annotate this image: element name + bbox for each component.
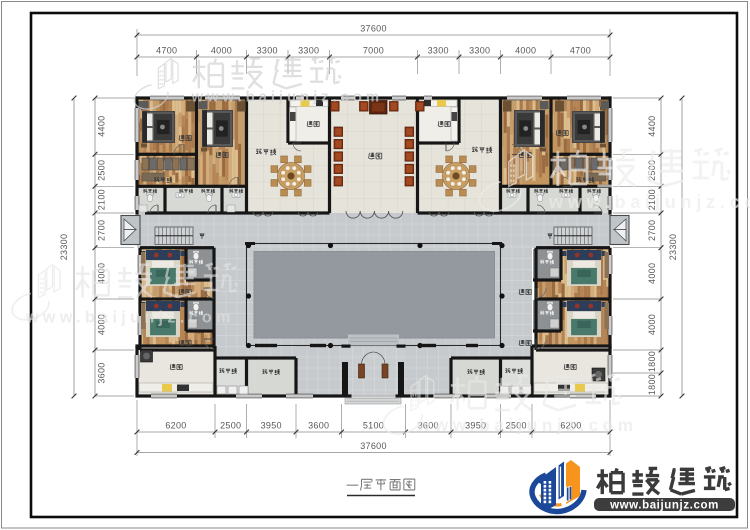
svg-text:4400: 4400 <box>97 116 107 137</box>
svg-text:3600: 3600 <box>97 362 107 383</box>
svg-text:4000: 4000 <box>211 46 232 56</box>
svg-text:www.baijunjz.com: www.baijunjz.com <box>25 308 235 326</box>
svg-text:www.baijunjz.com: www.baijunjz.com <box>609 499 719 511</box>
svg-text:4400: 4400 <box>647 116 657 137</box>
svg-text:37600: 37600 <box>360 441 387 451</box>
svg-text:4700: 4700 <box>570 46 591 56</box>
svg-text:23300: 23300 <box>59 234 69 261</box>
svg-text:37600: 37600 <box>360 24 387 34</box>
svg-text:2700: 2700 <box>97 220 107 241</box>
svg-text:4000: 4000 <box>515 46 536 56</box>
svg-text:5100: 5100 <box>363 421 384 431</box>
svg-text:3950: 3950 <box>261 421 282 431</box>
svg-text:3300: 3300 <box>298 46 319 56</box>
svg-text:2500: 2500 <box>220 421 241 431</box>
svg-text:3300: 3300 <box>257 46 278 56</box>
svg-text:3600: 3600 <box>308 421 329 431</box>
svg-text:2700: 2700 <box>647 220 657 241</box>
svg-text:7000: 7000 <box>363 46 384 56</box>
svg-text:www.baijunjz.com: www.baijunjz.com <box>416 416 638 435</box>
svg-text:4700: 4700 <box>156 46 177 56</box>
svg-text:6200: 6200 <box>165 421 186 431</box>
svg-text:4000: 4000 <box>647 263 657 284</box>
svg-text:3300: 3300 <box>428 46 449 56</box>
svg-text:4000: 4000 <box>647 314 657 335</box>
svg-text:23300: 23300 <box>668 234 678 261</box>
svg-text:3300: 3300 <box>469 46 490 56</box>
svg-text:1800: 1800 <box>647 374 657 395</box>
svg-text:www.baijunjz.com: www.baijunjz.com <box>191 90 383 106</box>
svg-text:2100: 2100 <box>97 189 107 210</box>
svg-text:1800: 1800 <box>647 351 657 372</box>
svg-text:www.baijunjz.com: www.baijunjz.com <box>548 192 750 212</box>
svg-text:2500: 2500 <box>97 160 107 181</box>
